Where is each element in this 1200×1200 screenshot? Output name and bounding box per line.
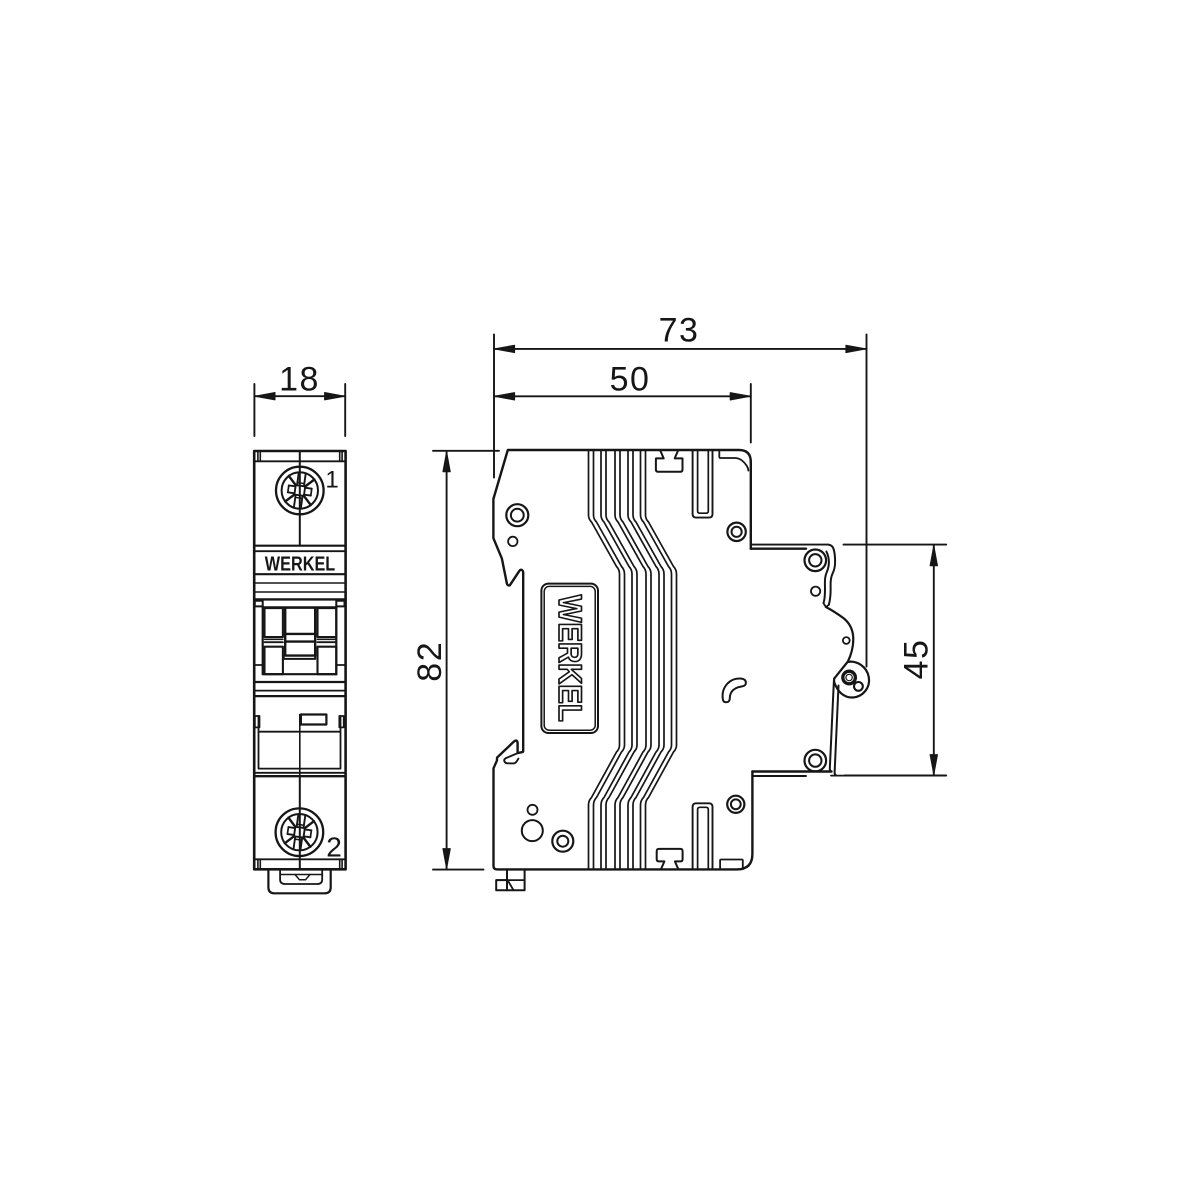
svg-text:2: 2 [326,832,342,863]
svg-text:18: 18 [279,361,320,399]
svg-text:45: 45 [898,639,936,680]
svg-text:50: 50 [610,361,651,399]
svg-text:WERKEL: WERKEL [552,595,588,722]
svg-text:82: 82 [411,641,449,682]
svg-text:73: 73 [659,312,700,350]
svg-text:1: 1 [325,467,338,494]
svg-text:WERKEL: WERKEL [265,552,336,575]
